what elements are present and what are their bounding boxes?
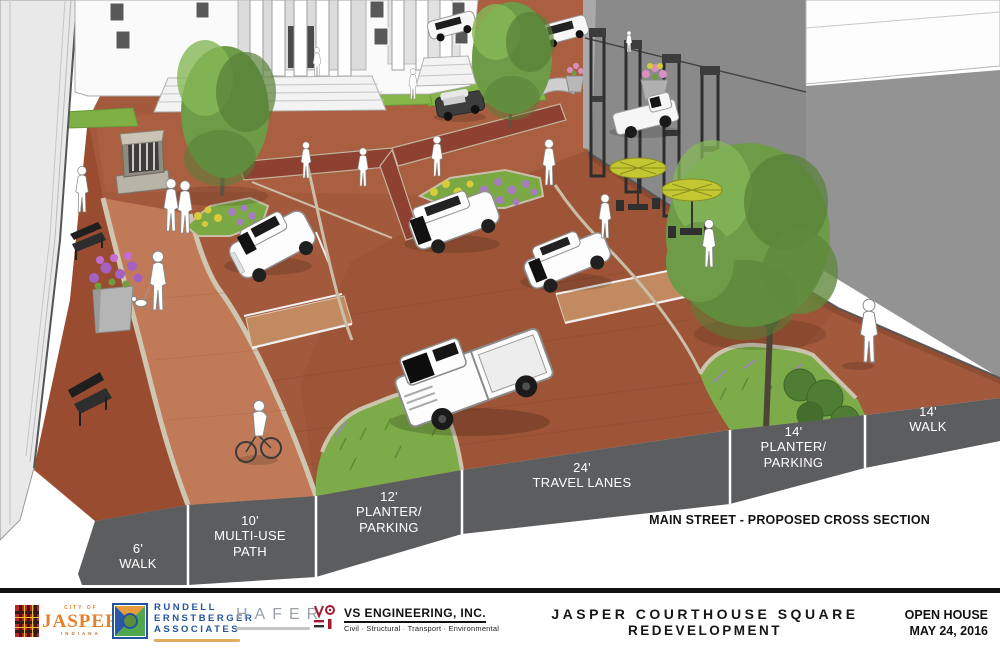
band-width: 12' <box>316 489 462 504</box>
hafer-name: HAFER <box>236 607 325 623</box>
band-width: 10' <box>183 513 317 528</box>
band-label-walk-14: 14' WALK <box>863 404 993 435</box>
band-use: WALK <box>86 556 190 571</box>
jasper-name: JASPER <box>42 612 120 631</box>
project-title: JASPER COURTHOUSE SQUARE REDEVELOPMENT <box>540 606 870 639</box>
jasper-plaid-flag-icon <box>15 605 39 637</box>
jasper-state: INDIANA <box>61 632 101 637</box>
presentation-board: 6' WALK 10' MULTI-USE PATH 12' PLANTER/ … <box>0 0 1000 651</box>
band-label-planter-parking-right: 14' PLANTER/ PARKING <box>722 424 865 470</box>
hafer-logo: HAFER <box>236 607 325 630</box>
band-width: 24' <box>466 460 698 475</box>
band-use: PARKING <box>316 520 462 535</box>
band-use: PLANTER/ <box>722 439 865 454</box>
band-use: TRAVEL LANES <box>466 475 698 490</box>
hafer-tagline-microtext <box>236 627 310 630</box>
perspective-rendering <box>0 0 1000 588</box>
band-width: 6' <box>86 541 190 556</box>
cross-section-caption: MAIN STREET - PROPOSED CROSS SECTION <box>630 513 930 527</box>
vs-name: VS ENGINEERING, INC. <box>344 607 486 623</box>
rendering-scene: 6' WALK 10' MULTI-USE PATH 12' PLANTER/ … <box>0 0 1000 588</box>
monument <box>116 130 170 194</box>
band-use: PATH <box>183 544 317 559</box>
event-info: OPEN HOUSE MAY 24, 2016 <box>858 607 988 640</box>
band-width: 14' <box>722 424 865 439</box>
city-of-jasper-logo: CITY OF JASPER INDIANA <box>15 605 120 637</box>
rea-mark-icon <box>112 603 148 639</box>
planter-pot <box>566 76 584 92</box>
rundell-ernstberger-logo: RUNDELL ERNSTBERGER ASSOCIATES <box>112 603 254 642</box>
band-label-travel-lanes: 24' TRAVEL LANES <box>466 460 698 491</box>
vs-mark-icon <box>314 605 336 636</box>
person-shadow <box>842 362 874 370</box>
band-label-multi-use-path: 10' MULTI-USE PATH <box>183 513 317 559</box>
event-date: MAY 24, 2016 <box>858 623 988 639</box>
event-name: OPEN HOUSE <box>858 607 988 623</box>
band-use: PARKING <box>722 455 865 470</box>
jasper-city-of: CITY OF <box>64 606 98 611</box>
band-label-planter-parking-left: 12' PLANTER/ PARKING <box>316 489 462 535</box>
title-block-footer: CITY OF JASPER INDIANA RUNDELL ERNSTBERG… <box>0 588 1000 651</box>
rea-tagline-microtext <box>154 639 240 642</box>
vs-engineering-logo: VS ENGINEERING, INC. Civil · Structural … <box>344 605 499 633</box>
band-label-walk-6: 6' WALK <box>86 541 190 572</box>
vs-tagline: Civil · Structural · Transport · Environ… <box>344 625 499 633</box>
band-use: WALK <box>863 419 993 434</box>
project-title-line2: REDEVELOPMENT <box>540 623 870 639</box>
band-use: MULTI-USE <box>183 528 317 543</box>
band-width: 14' <box>863 404 993 419</box>
project-title-line1: JASPER COURTHOUSE SQUARE <box>540 606 870 623</box>
band-use: PLANTER/ <box>316 504 462 519</box>
